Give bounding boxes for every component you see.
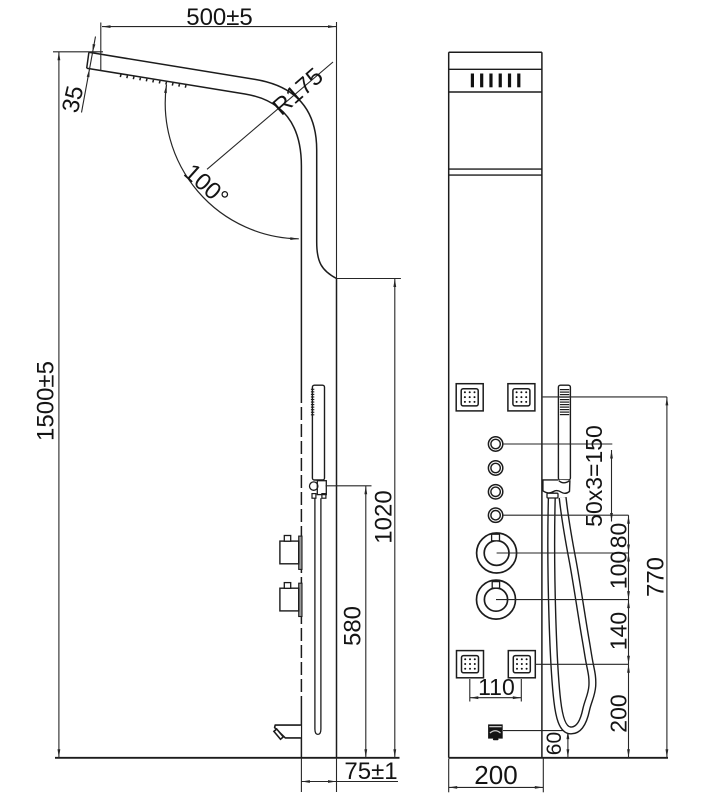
svg-text:50x3=150: 50x3=150 bbox=[581, 425, 607, 527]
svg-text:770: 770 bbox=[643, 557, 670, 597]
svg-text:140: 140 bbox=[606, 612, 632, 650]
svg-text:R175: R175 bbox=[268, 63, 329, 121]
svg-text:1020: 1020 bbox=[371, 490, 398, 543]
svg-text:580: 580 bbox=[340, 606, 367, 646]
svg-text:500±5: 500±5 bbox=[186, 4, 253, 31]
svg-text:100°: 100° bbox=[179, 159, 234, 212]
svg-text:75±1: 75±1 bbox=[344, 758, 397, 785]
svg-text:200: 200 bbox=[606, 694, 632, 732]
svg-text:35: 35 bbox=[57, 83, 89, 115]
svg-text:60: 60 bbox=[543, 732, 566, 755]
svg-text:80: 80 bbox=[606, 523, 632, 549]
svg-text:110: 110 bbox=[478, 674, 515, 700]
svg-text:1500±5: 1500±5 bbox=[33, 361, 60, 441]
svg-text:200: 200 bbox=[474, 760, 517, 790]
svg-text:100: 100 bbox=[606, 551, 632, 589]
